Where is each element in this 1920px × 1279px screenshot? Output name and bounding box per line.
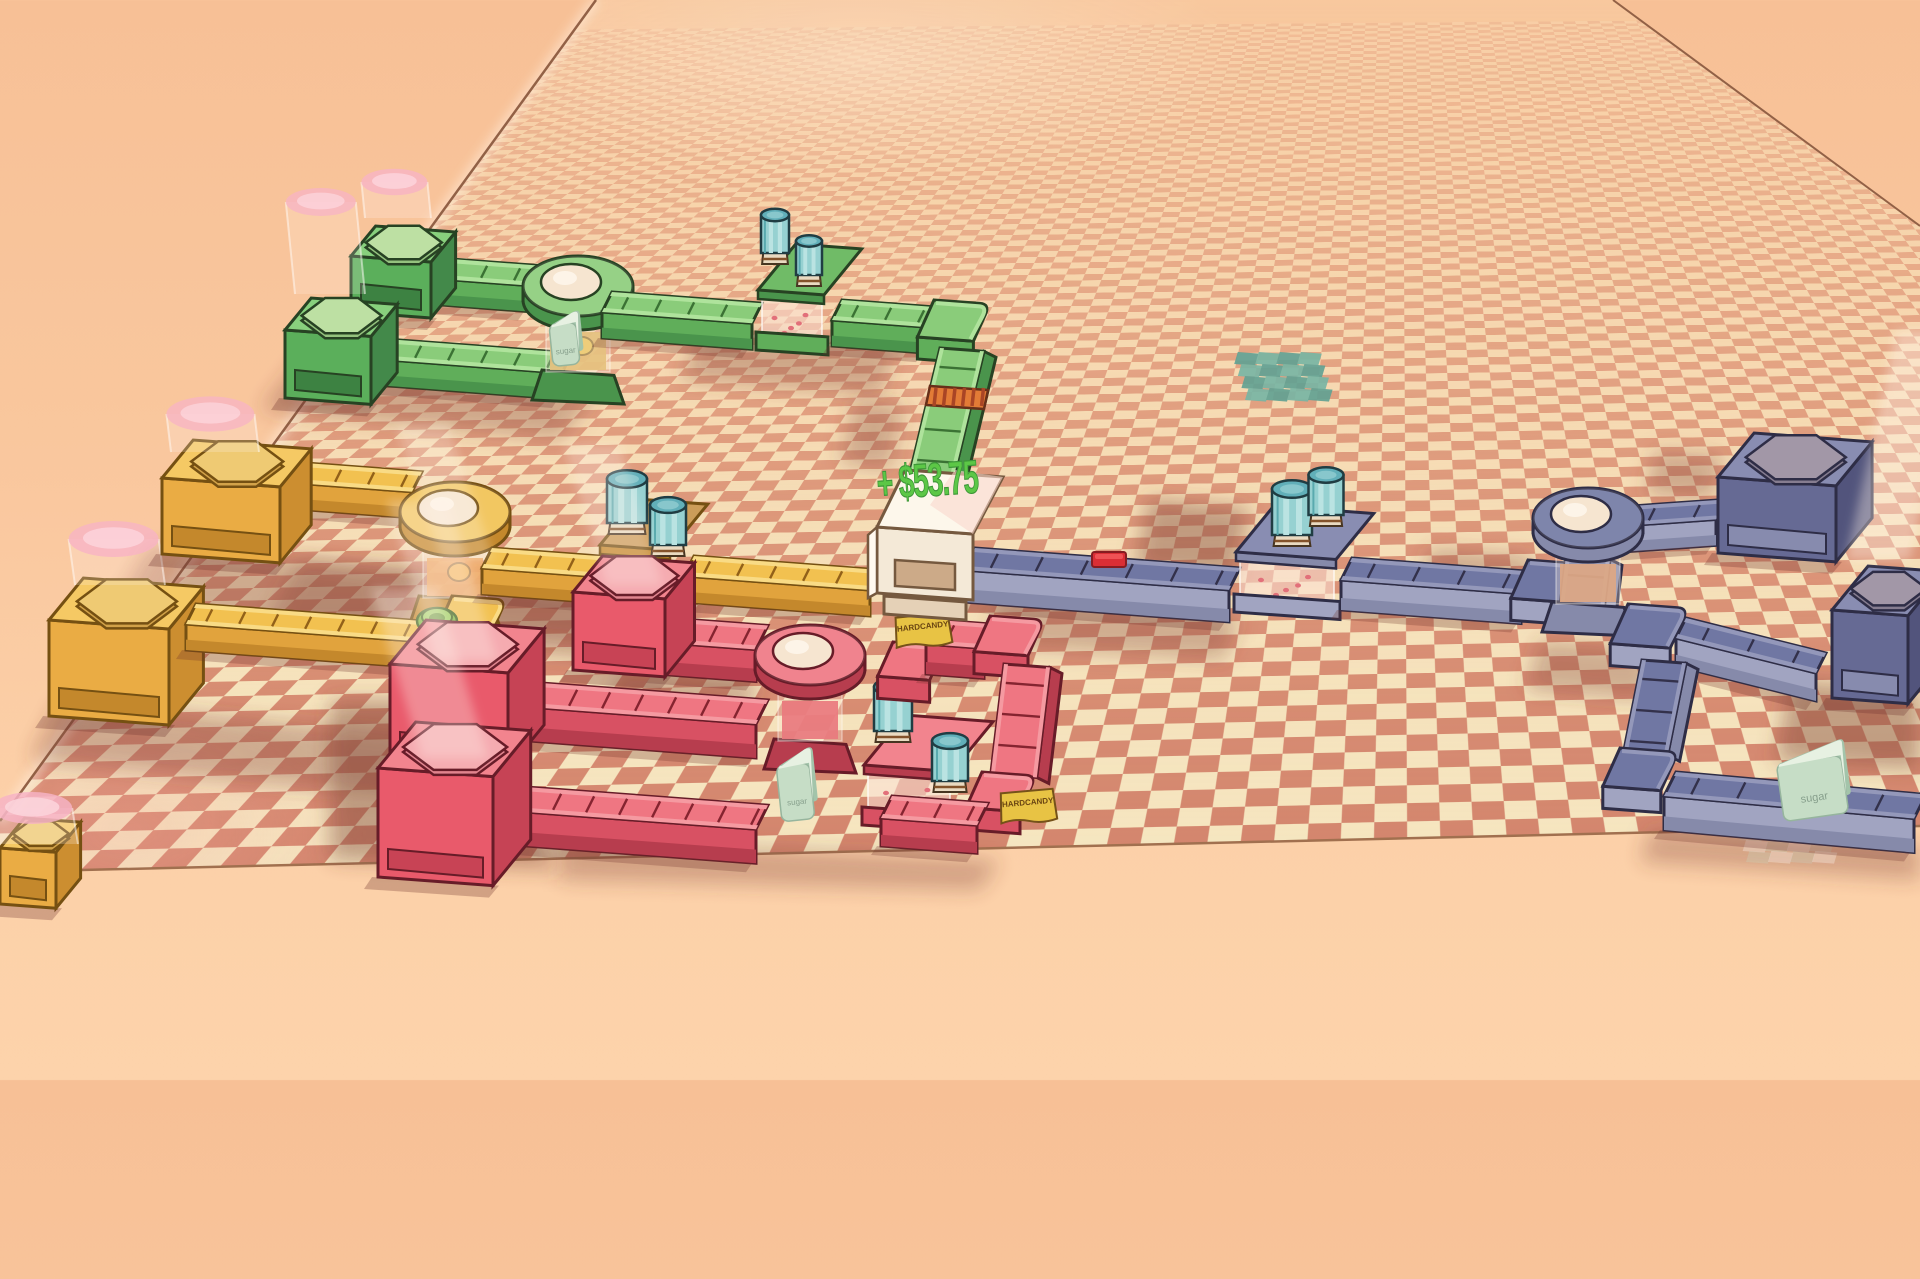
svg-text:+ $53.75: + $53.75 [875,451,980,510]
